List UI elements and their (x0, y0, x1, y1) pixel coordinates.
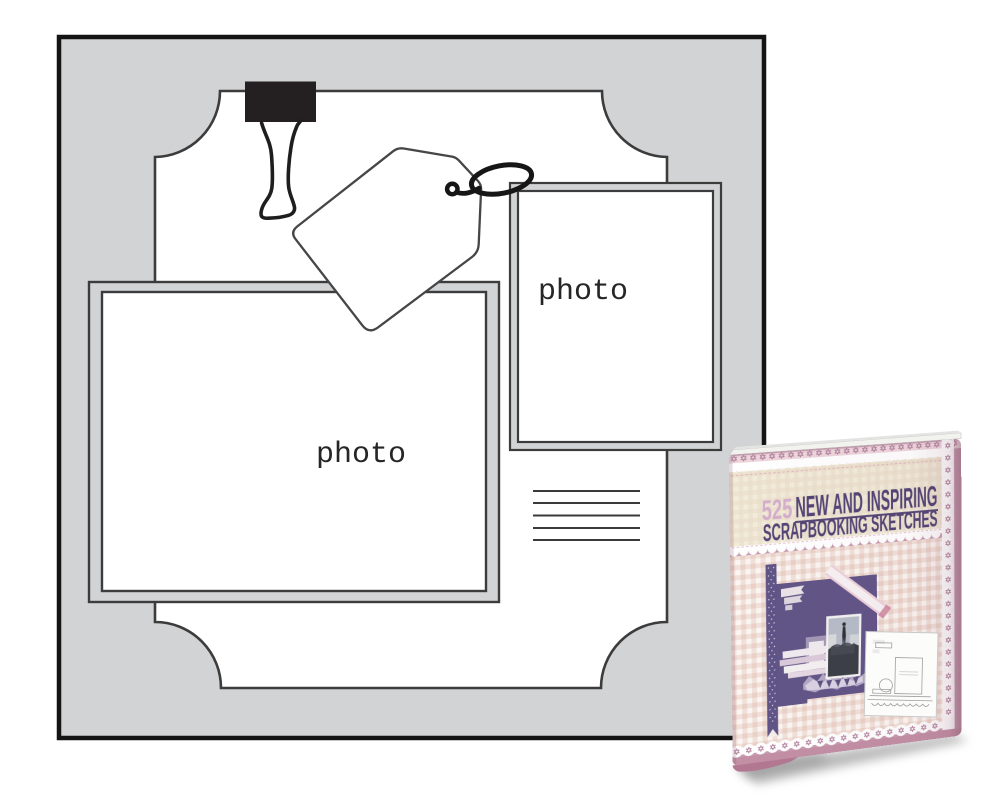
svg-text:photo: photo (538, 275, 628, 309)
svg-text:photo: photo (316, 438, 406, 472)
